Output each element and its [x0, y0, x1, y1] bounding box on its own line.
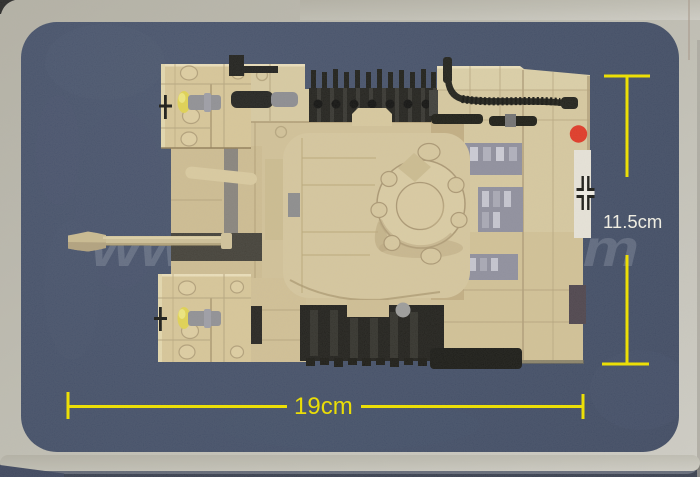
svg-text:19cm: 19cm [294, 393, 353, 420]
svg-text:11.5cm: 11.5cm [603, 211, 662, 232]
